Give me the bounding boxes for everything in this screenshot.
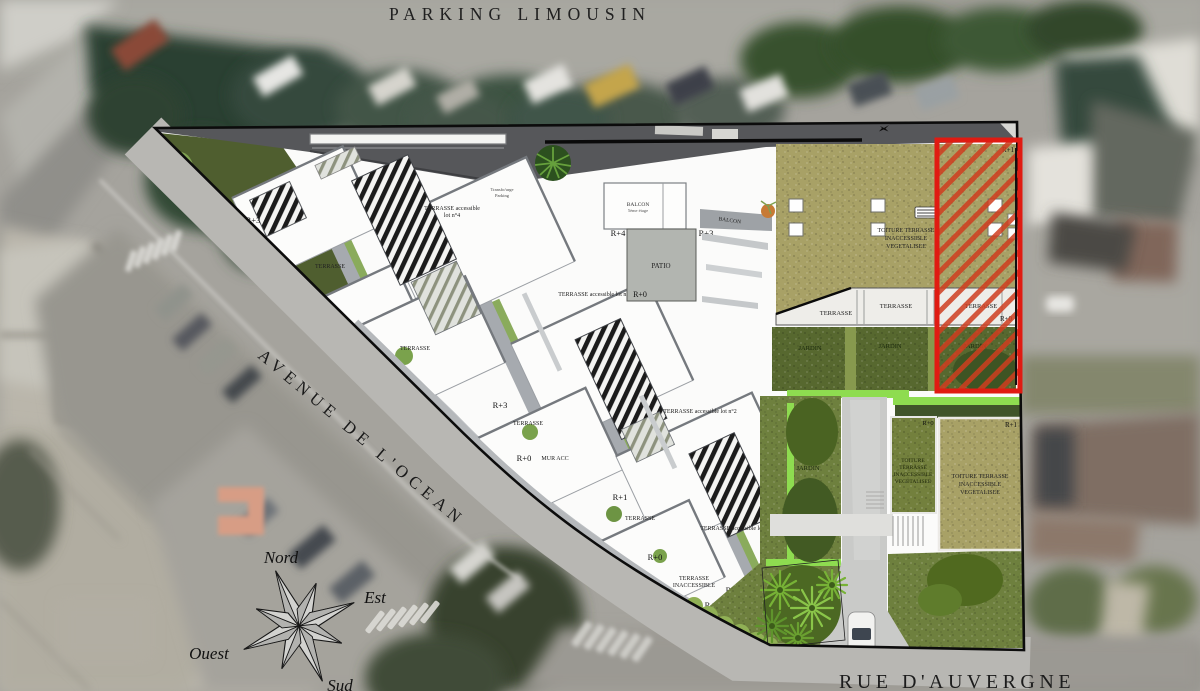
svg-text:JARDIN: JARDIN bbox=[878, 343, 901, 350]
svg-text:PATIO: PATIO bbox=[651, 262, 670, 270]
svg-text:Est: Est bbox=[363, 588, 387, 607]
svg-text:TERRASSE accessible: TERRASSE accessible bbox=[424, 206, 480, 212]
svg-text:TERRASSE: TERRASSE bbox=[899, 465, 927, 471]
svg-text:VEGETALISEE: VEGETALISEE bbox=[895, 479, 932, 485]
svg-text:R+1: R+1 bbox=[613, 492, 628, 502]
svg-text:INACCESSIBLE: INACCESSIBLE bbox=[894, 472, 933, 478]
svg-text:VEGETALISEE: VEGETALISEE bbox=[886, 244, 926, 250]
svg-text:Transfo/urge: Transfo/urge bbox=[490, 187, 513, 192]
svg-text:TERRASSE: TERRASSE bbox=[315, 264, 345, 270]
svg-text:TERRASSE: TERRASSE bbox=[679, 576, 709, 582]
svg-text:R+1: R+1 bbox=[1005, 421, 1018, 429]
svg-text:lot n°4: lot n°4 bbox=[444, 212, 460, 219]
svg-text:R+0: R+0 bbox=[633, 290, 647, 299]
svg-text:VEGETALISEE: VEGETALISEE bbox=[960, 490, 1000, 496]
svg-text:TERRASSE: TERRASSE bbox=[625, 516, 655, 522]
svg-text:R+0: R+0 bbox=[922, 420, 933, 427]
svg-text:TERRASSE: TERRASSE bbox=[820, 310, 853, 317]
svg-text:Parking: Parking bbox=[495, 193, 510, 198]
svg-text:TERRASSE: TERRASSE bbox=[400, 346, 430, 352]
svg-text:R+0: R+0 bbox=[648, 552, 663, 562]
svg-text:5ème étage: 5ème étage bbox=[628, 208, 648, 213]
svg-text:TOITURE: TOITURE bbox=[901, 458, 925, 464]
svg-text:JARDIN: JARDIN bbox=[796, 465, 819, 472]
svg-text:TERRASSE accessible lot n°5: TERRASSE accessible lot n°5 bbox=[558, 291, 632, 298]
svg-text:R+0: R+0 bbox=[517, 453, 532, 463]
svg-text:PARKING LIMOUSIN: PARKING LIMOUSIN bbox=[389, 4, 651, 24]
svg-text:INACCESSIBLE: INACCESSIBLE bbox=[673, 583, 716, 589]
svg-text:TERRASSE: TERRASSE bbox=[880, 303, 913, 310]
svg-text:RUE D'AUVERGNE: RUE D'AUVERGNE bbox=[839, 671, 1075, 691]
svg-text:TOITURE TERRASSE: TOITURE TERRASSE bbox=[952, 474, 1009, 480]
svg-text:Ouest: Ouest bbox=[189, 644, 230, 663]
svg-text:MUR ACC: MUR ACC bbox=[541, 456, 568, 462]
svg-text:TERRASSE accessible lot n°2: TERRASSE accessible lot n°2 bbox=[663, 408, 737, 415]
svg-text:Sud: Sud bbox=[327, 676, 353, 691]
svg-text:INACCESSIBLE: INACCESSIBLE bbox=[885, 236, 928, 242]
svg-text:R+3: R+3 bbox=[493, 400, 508, 410]
svg-text:TOITURE TERRASSE: TOITURE TERRASSE bbox=[878, 228, 935, 234]
svg-text:Nord: Nord bbox=[263, 548, 299, 567]
svg-text:TERRASSE: TERRASSE bbox=[513, 421, 543, 427]
svg-text:INACCESSIBLE: INACCESSIBLE bbox=[959, 482, 1002, 488]
svg-text:R+4: R+4 bbox=[611, 228, 626, 238]
svg-text:JARDIN: JARDIN bbox=[798, 345, 821, 352]
